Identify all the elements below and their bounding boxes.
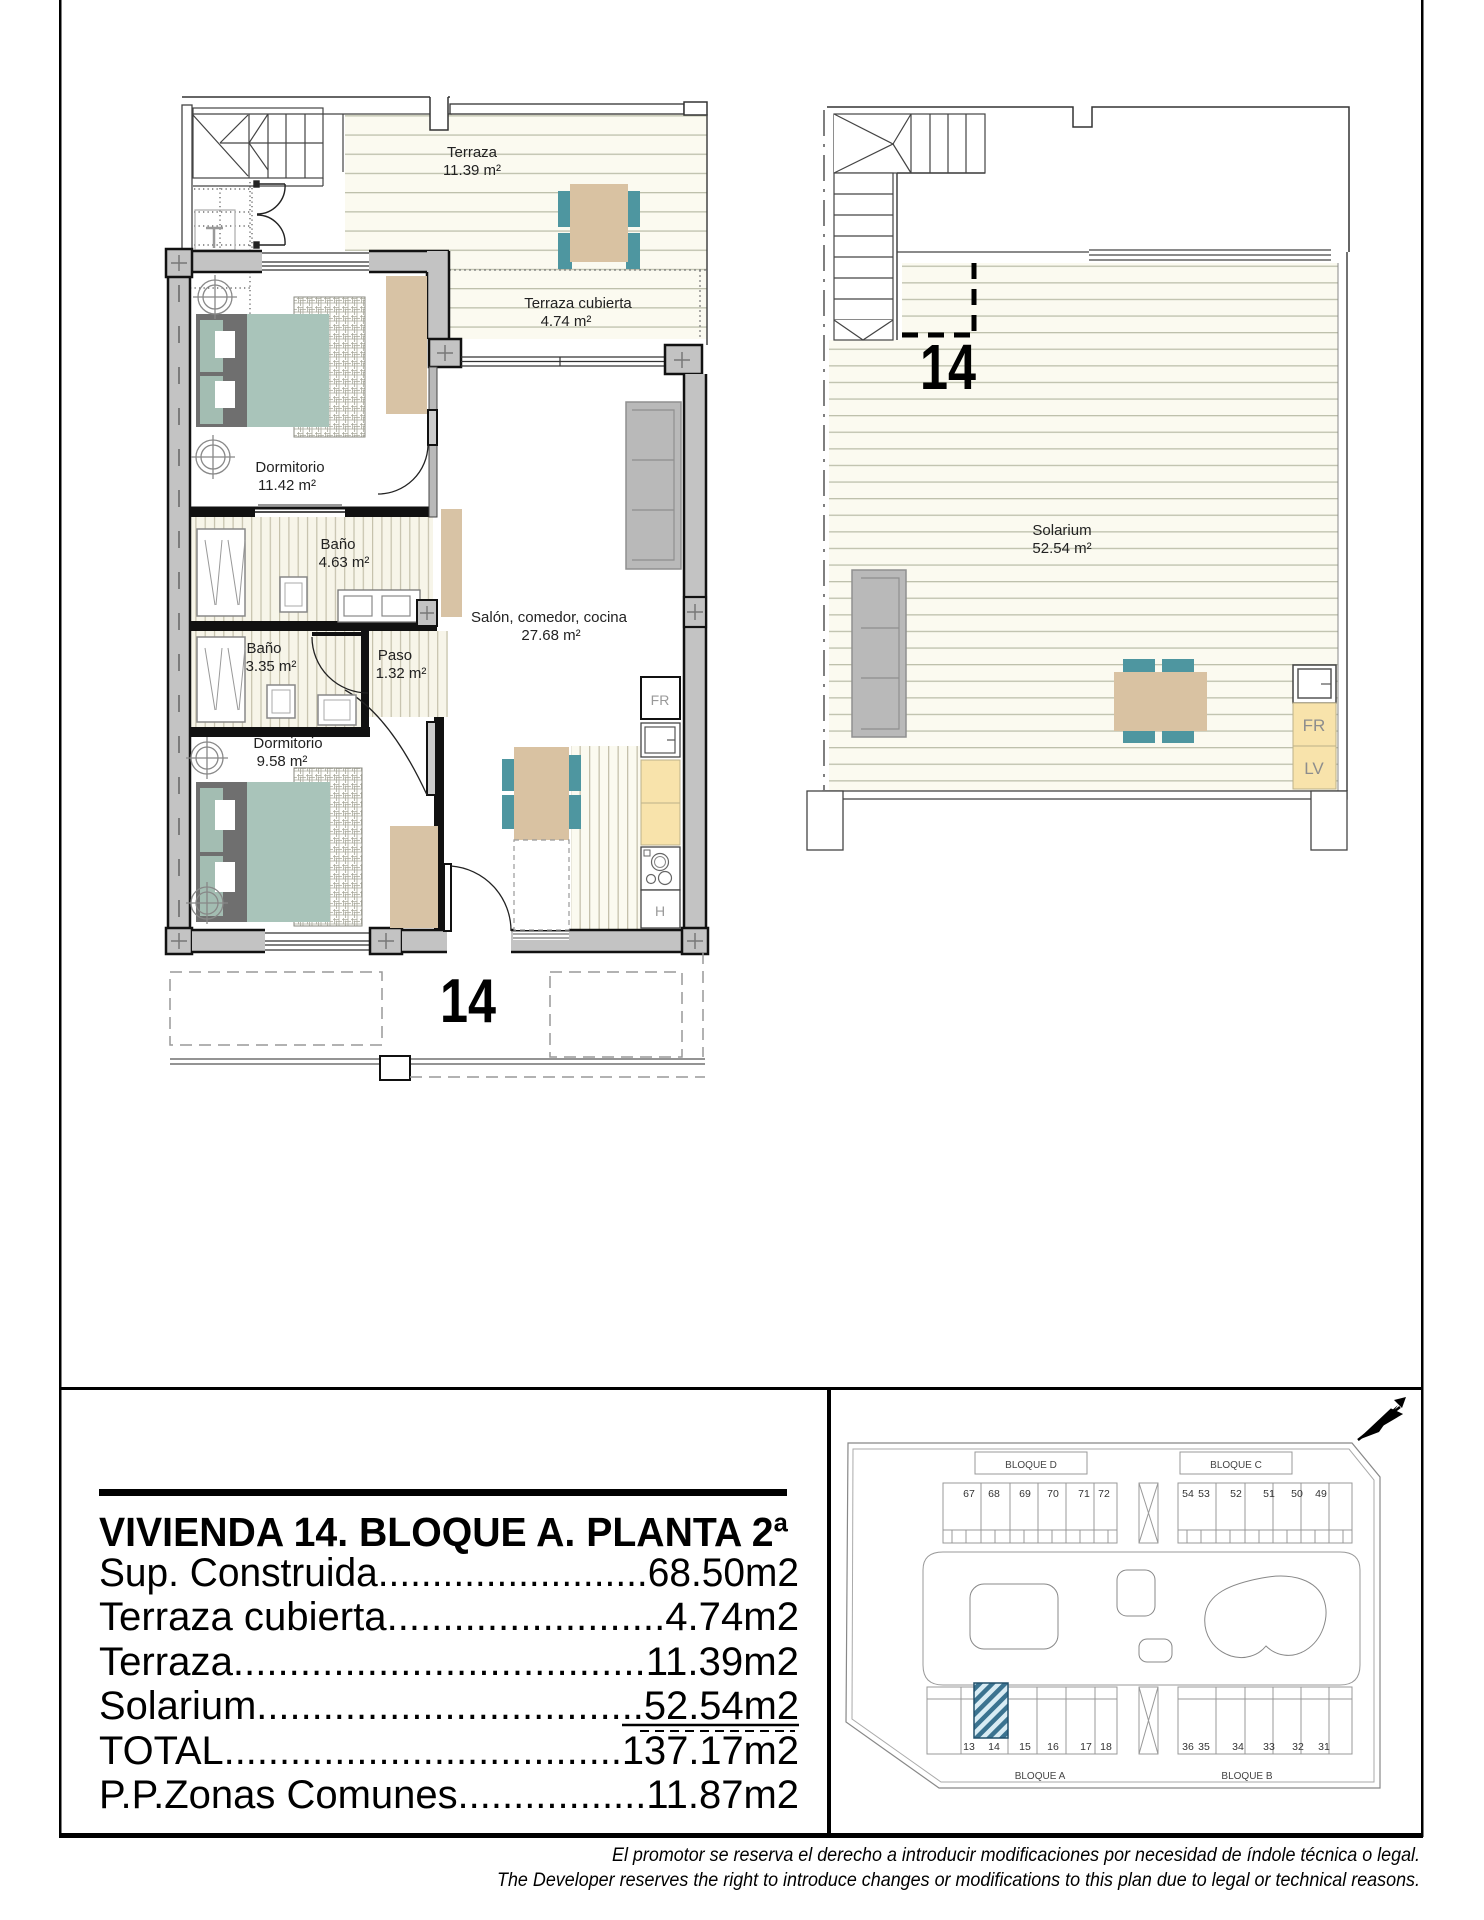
- svg-text:Paso: Paso: [378, 647, 412, 664]
- svg-text:LV: LV: [1304, 759, 1324, 778]
- svg-text:Solarium......................: Solarium................................…: [99, 1684, 799, 1728]
- svg-text:FR: FR: [651, 692, 670, 708]
- svg-text:Terraza: Terraza: [447, 144, 498, 161]
- svg-text:FR: FR: [1303, 716, 1326, 735]
- svg-text:52: 52: [1230, 1488, 1242, 1500]
- svg-text:33: 33: [1263, 1741, 1275, 1753]
- svg-text:67: 67: [963, 1488, 975, 1500]
- svg-text:Dormitorio: Dormitorio: [255, 459, 324, 476]
- svg-text:3.35 m²: 3.35 m²: [246, 658, 297, 675]
- svg-text:27.68 m²: 27.68 m²: [521, 627, 580, 644]
- svg-text:Terraza.......................: Terraza.................................…: [99, 1640, 799, 1684]
- svg-text:11.42 m²: 11.42 m²: [258, 477, 316, 494]
- svg-text:11.39 m²: 11.39 m²: [443, 162, 501, 179]
- svg-text:16: 16: [1047, 1741, 1059, 1753]
- svg-text:14: 14: [920, 331, 976, 403]
- svg-text:36: 36: [1182, 1741, 1194, 1753]
- svg-text:70: 70: [1047, 1488, 1059, 1500]
- svg-text:TOTAL.........................: TOTAL...................................…: [99, 1729, 799, 1773]
- svg-text:68: 68: [988, 1488, 1000, 1500]
- svg-text:69: 69: [1019, 1488, 1031, 1500]
- svg-text:Terraza cubierta: Terraza cubierta: [524, 295, 632, 312]
- svg-text:Baño: Baño: [320, 536, 355, 553]
- svg-text:31: 31: [1318, 1741, 1330, 1753]
- svg-text:17: 17: [1080, 1741, 1092, 1753]
- svg-text:Terraza cubierta..............: Terraza cubierta........................…: [99, 1595, 799, 1639]
- svg-text:53: 53: [1198, 1488, 1210, 1500]
- svg-text:BLOQUE B: BLOQUE B: [1221, 1771, 1272, 1782]
- svg-text:BLOQUE C: BLOQUE C: [1210, 1460, 1262, 1471]
- svg-text:Solarium: Solarium: [1032, 522, 1091, 539]
- svg-text:14: 14: [988, 1741, 1000, 1753]
- svg-text:14: 14: [440, 967, 496, 1036]
- svg-text:Salón, comedor, cocina: Salón, comedor, cocina: [471, 609, 628, 626]
- svg-text:72: 72: [1098, 1488, 1110, 1500]
- svg-text:52.54 m²: 52.54 m²: [1032, 540, 1091, 557]
- svg-text:BLOQUE A: BLOQUE A: [1015, 1771, 1066, 1782]
- svg-text:1.32 m²: 1.32 m²: [376, 665, 427, 682]
- svg-text:El promotor se reserva el dere: El promotor se reserva el derecho a intr…: [612, 1844, 1420, 1866]
- svg-text:Baño: Baño: [246, 640, 281, 657]
- svg-text:50: 50: [1291, 1488, 1303, 1500]
- svg-text:13: 13: [963, 1741, 975, 1753]
- svg-text:H: H: [655, 903, 665, 919]
- svg-text:71: 71: [1078, 1488, 1090, 1500]
- svg-text:32: 32: [1292, 1741, 1304, 1753]
- svg-text:4.74 m²: 4.74 m²: [541, 313, 592, 330]
- svg-text:VIVIENDA 14. BLOQUE A. PLANTA: VIVIENDA 14. BLOQUE A. PLANTA 2ª: [99, 1509, 789, 1555]
- svg-text:Sup. Construida...............: Sup. Construida.........................…: [99, 1551, 799, 1595]
- svg-text:18: 18: [1100, 1741, 1112, 1753]
- svg-text:15: 15: [1019, 1741, 1031, 1753]
- svg-text:Dormitorio: Dormitorio: [253, 735, 322, 752]
- svg-text:9.58 m²: 9.58 m²: [257, 753, 308, 770]
- svg-text:49: 49: [1315, 1488, 1327, 1500]
- svg-text:35: 35: [1198, 1741, 1210, 1753]
- svg-text:P.P.Zonas Comunes.............: P.P.Zonas Comunes.................11.87m…: [99, 1773, 799, 1817]
- svg-text:54: 54: [1182, 1488, 1194, 1500]
- svg-text:34: 34: [1232, 1741, 1244, 1753]
- svg-text:4.63 m²: 4.63 m²: [319, 554, 370, 571]
- svg-text:51: 51: [1263, 1488, 1275, 1500]
- svg-text:The Developer reserves the rig: The Developer reserves the right to intr…: [497, 1869, 1420, 1891]
- svg-text:BLOQUE D: BLOQUE D: [1005, 1460, 1057, 1471]
